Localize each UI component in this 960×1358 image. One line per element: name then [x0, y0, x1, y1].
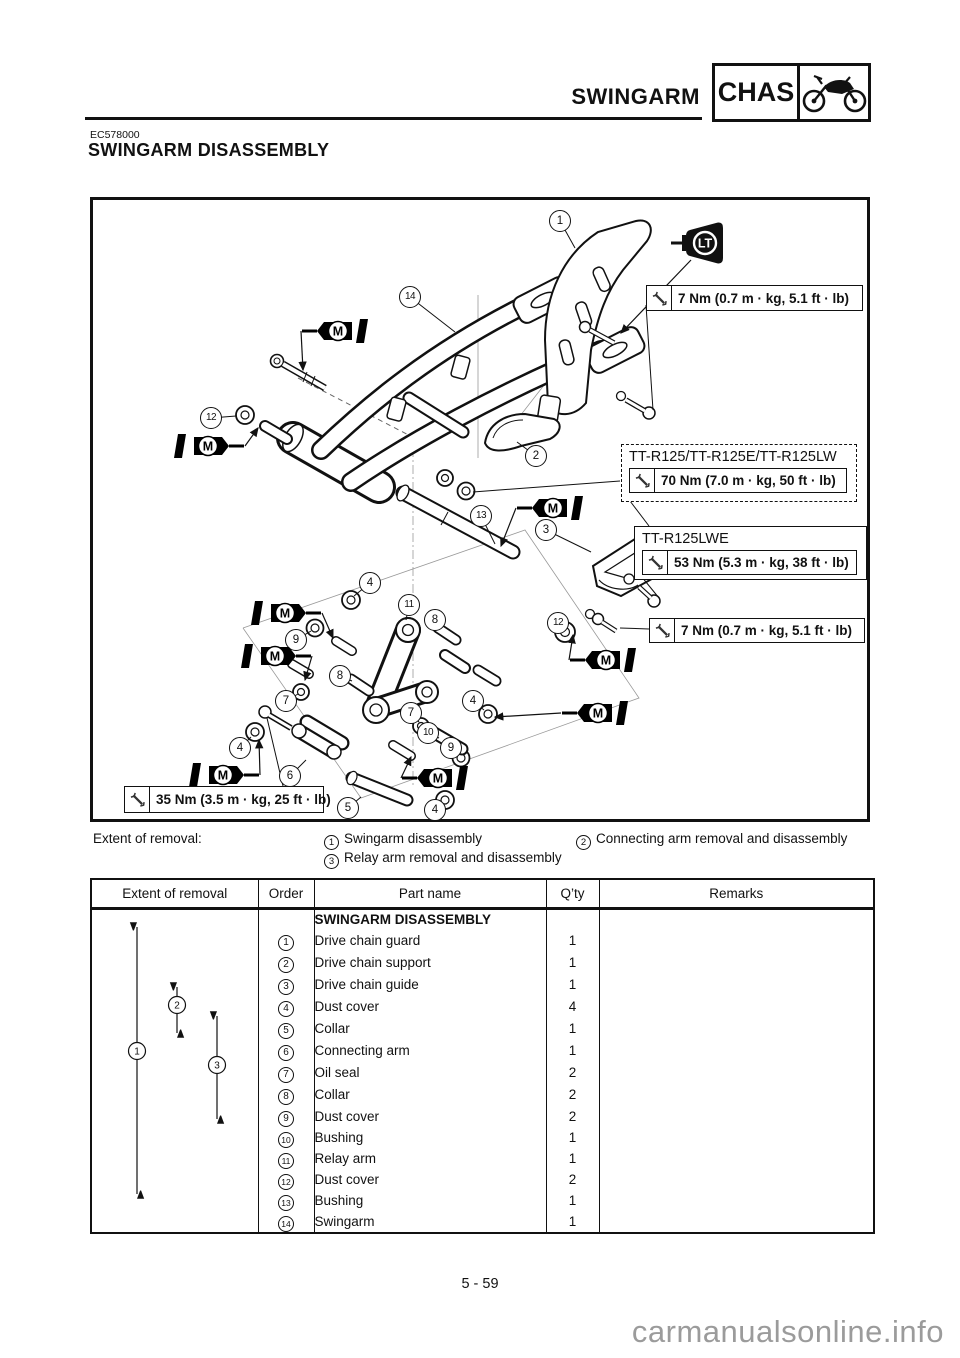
callout-8: 8 — [329, 665, 351, 687]
torque-spec-70nm: 70 Nm (7.0 m · kg, 50 ft · lb) — [629, 468, 847, 493]
remarks-cell — [599, 1127, 874, 1148]
torque-wrench-icon — [630, 469, 655, 492]
svg-text:M: M — [333, 325, 343, 339]
remarks-cell — [599, 1061, 874, 1083]
torque-value: 7 Nm (0.7 m · kg, 5.1 ft · lb) — [672, 286, 862, 310]
col-header-order: Order — [258, 879, 314, 909]
callout-1: 1 — [549, 210, 571, 232]
section-title: SWINGARM — [380, 84, 700, 110]
svg-text:M: M — [203, 440, 213, 454]
remarks-cell — [599, 995, 874, 1017]
model-variant-box: TT-R125LWE 53 Nm (5.3 m · kg, 38 ft · lb… — [634, 526, 867, 580]
remarks-cell — [599, 951, 874, 973]
torque-spec-7nm-mid: 7 Nm (0.7 m · kg, 5.1 ft · lb) — [649, 618, 865, 643]
torque-value: 53 Nm (5.3 m · kg, 38 ft · lb) — [668, 551, 856, 574]
qty-cell: 4 — [546, 995, 599, 1017]
callout-7: 7 — [275, 690, 297, 712]
qty-cell: 2 — [546, 1169, 599, 1190]
svg-text:M: M — [218, 769, 228, 783]
torque-spec-35nm: 35 Nm (3.5 m · kg, 25 ft · lb) — [124, 786, 324, 813]
part-name-cell: Drive chain guard — [314, 929, 546, 951]
order-cell: 4 — [258, 995, 314, 1017]
circled-number: 3 — [278, 979, 294, 995]
callout-4: 4 — [462, 690, 484, 712]
part-name-cell: SWINGARM DISASSEMBLY — [314, 909, 546, 930]
circled-number: 10 — [278, 1132, 294, 1148]
callout-4: 4 — [229, 737, 251, 759]
torque-spec-53nm: 53 Nm (5.3 m · kg, 38 ft · lb) — [642, 550, 857, 575]
remarks-cell — [599, 1039, 874, 1061]
qty-cell: 2 — [546, 1061, 599, 1083]
callout-4: 4 — [424, 799, 446, 821]
part-name-cell: Dust cover — [314, 1105, 546, 1127]
torque-value: 7 Nm (0.7 m · kg, 5.1 ft · lb) — [675, 619, 864, 642]
circled-number: 11 — [278, 1153, 294, 1169]
circled-number: 5 — [278, 1023, 294, 1039]
order-cell: 3 — [258, 973, 314, 995]
callout-12: 12 — [547, 612, 569, 634]
order-cell: 6 — [258, 1039, 314, 1061]
circled-number: 2 — [278, 957, 294, 973]
callout-13: 13 — [470, 505, 492, 527]
grease-applicator-icon: M — [244, 598, 322, 633]
torque-wrench-icon — [125, 787, 150, 812]
grease-applicator-icon: M — [401, 763, 479, 798]
page-number: 5 - 59 — [0, 1276, 960, 1292]
grease-applicator-icon: M — [234, 641, 312, 676]
remarks-cell — [599, 1211, 874, 1233]
part-name-cell: Dust cover — [314, 1169, 546, 1190]
qty-cell: 1 — [546, 1190, 599, 1211]
order-cell: 11 — [258, 1148, 314, 1169]
col-header-remarks: Remarks — [599, 879, 874, 909]
extent-item-text: Swingarm disassembly — [344, 831, 482, 846]
part-name-cell: Drive chain guide — [314, 973, 546, 995]
qty-cell — [546, 909, 599, 930]
extent-item-3: 3Relay arm removal and disassembly — [324, 850, 562, 869]
svg-text:3: 3 — [214, 1061, 220, 1072]
svg-text:M: M — [548, 502, 558, 516]
grease-applicator-icon: M — [167, 431, 245, 466]
table-header-row: Extent of removal Order Part name Q’ty R… — [91, 879, 874, 909]
order-cell: 9 — [258, 1105, 314, 1127]
model-variant-label: TT-R125/TT-R125E/TT-R125LW — [629, 447, 856, 467]
circled-number: 13 — [278, 1195, 294, 1211]
order-cell: 14 — [258, 1211, 314, 1233]
remarks-cell — [599, 1169, 874, 1190]
loctite-icon: LT — [671, 220, 729, 271]
grease-applicator-icon: M — [561, 698, 639, 733]
torque-spec-7nm-top: 7 Nm (0.7 m · kg, 5.1 ft · lb) — [646, 285, 863, 311]
part-name-cell: Relay arm — [314, 1148, 546, 1169]
qty-cell: 1 — [546, 1211, 599, 1233]
torque-value: 35 Nm (3.5 m · kg, 25 ft · lb) — [150, 787, 337, 812]
svg-text:M: M — [433, 772, 443, 786]
circled-number: 4 — [278, 1001, 294, 1017]
callout-12: 12 — [200, 407, 222, 429]
part-name-cell: Collar — [314, 1083, 546, 1105]
extent-item-2: 2Connecting arm removal and disassembly — [576, 831, 847, 850]
extent-arrows-diagram: 123 — [93, 909, 260, 1199]
callout-10: 10 — [417, 722, 439, 744]
callout-14: 14 — [399, 286, 421, 308]
part-name-cell: Dust cover — [314, 995, 546, 1017]
order-cell: 8 — [258, 1083, 314, 1105]
remarks-cell — [599, 909, 874, 930]
qty-cell: 1 — [546, 973, 599, 995]
model-variant-label: TT-R125LWE — [642, 529, 866, 549]
circled-number: 8 — [278, 1089, 294, 1105]
part-name-cell: Swingarm — [314, 1211, 546, 1233]
part-name-cell: Bushing — [314, 1127, 546, 1148]
torque-wrench-icon — [647, 286, 672, 310]
extent-item-1: 1Swingarm disassembly — [324, 831, 482, 850]
callout-4: 4 — [359, 572, 381, 594]
extent-item-text: Connecting arm removal and disassembly — [596, 831, 847, 846]
torque-value: 70 Nm (7.0 m · kg, 50 ft · lb) — [655, 469, 846, 492]
svg-text:M: M — [601, 654, 611, 668]
circled-number: 1 — [324, 835, 339, 850]
part-name-cell: Oil seal — [314, 1061, 546, 1083]
callout-11: 11 — [398, 594, 420, 616]
manual-page: SWINGARM CHAS EC578000 SWINGARM DISASSEM… — [0, 0, 960, 1358]
qty-cell: 2 — [546, 1083, 599, 1105]
qty-cell: 1 — [546, 951, 599, 973]
order-cell: 5 — [258, 1017, 314, 1039]
grease-applicator-icon: M — [301, 316, 379, 351]
qty-cell: 1 — [546, 1039, 599, 1061]
order-cell: 10 — [258, 1127, 314, 1148]
part-name-cell: Collar — [314, 1017, 546, 1039]
parts-table-wrap: Extent of removal Order Part name Q’ty R… — [90, 878, 873, 1234]
circled-number: 9 — [278, 1111, 294, 1127]
order-cell: 13 — [258, 1190, 314, 1211]
part-name-cell: Bushing — [314, 1190, 546, 1211]
order-cell: 2 — [258, 951, 314, 973]
motorcycle-icon — [800, 66, 868, 119]
svg-text:M: M — [270, 650, 280, 664]
col-header-extent: Extent of removal — [91, 879, 258, 909]
callout-9: 9 — [440, 737, 462, 759]
part-name-cell: Drive chain support — [314, 951, 546, 973]
remarks-cell — [599, 929, 874, 951]
col-header-qty: Q’ty — [546, 879, 599, 909]
remarks-cell — [599, 1190, 874, 1211]
col-header-part-name: Part name — [314, 879, 546, 909]
torque-wrench-icon — [650, 619, 675, 642]
qty-cell: 1 — [546, 1148, 599, 1169]
circled-number: 7 — [278, 1067, 294, 1083]
callout-8: 8 — [424, 609, 446, 631]
remarks-cell — [599, 1148, 874, 1169]
watermark: carmanualsonline.info — [632, 1314, 944, 1350]
grease-applicator-icon: M — [569, 645, 647, 680]
svg-text:1: 1 — [134, 1047, 140, 1058]
circled-number: 12 — [278, 1174, 294, 1190]
svg-text:2: 2 — [174, 1001, 180, 1012]
chapter-code: CHAS — [715, 66, 800, 119]
chapter-tab: CHAS — [712, 63, 871, 122]
model-variant-box: TT-R125/TT-R125E/TT-R125LW 70 Nm (7.0 m … — [621, 444, 857, 502]
extent-item-text: Relay arm removal and disassembly — [344, 850, 562, 865]
torque-wrench-icon — [643, 551, 668, 574]
qty-cell: 1 — [546, 1017, 599, 1039]
exploded-diagram: 114212133124118987741094654 MMMMMMMMM LT… — [90, 197, 870, 822]
svg-text:M: M — [593, 707, 603, 721]
circled-number: 2 — [576, 835, 591, 850]
remarks-cell — [599, 1105, 874, 1127]
remarks-cell — [599, 973, 874, 995]
part-name-cell: Connecting arm — [314, 1039, 546, 1061]
callout-6: 6 — [279, 765, 301, 787]
extent-of-removal-label: Extent of removal: — [93, 831, 202, 846]
callout-7: 7 — [400, 702, 422, 724]
qty-cell: 1 — [546, 929, 599, 951]
circled-number: 14 — [278, 1216, 294, 1232]
circled-number: 1 — [278, 935, 294, 951]
order-cell — [258, 909, 314, 930]
circled-number: 3 — [324, 854, 339, 869]
order-cell: 12 — [258, 1169, 314, 1190]
header-rule — [85, 117, 702, 120]
circled-number: 6 — [278, 1045, 294, 1061]
remarks-cell — [599, 1083, 874, 1105]
callout-2: 2 — [525, 445, 547, 467]
qty-cell: 1 — [546, 1127, 599, 1148]
svg-text:M: M — [280, 607, 290, 621]
grease-applicator-icon: M — [516, 493, 594, 528]
remarks-cell — [599, 1017, 874, 1039]
table-row: 14Swingarm1 — [91, 1211, 874, 1233]
order-cell: 7 — [258, 1061, 314, 1083]
extent-cell — [91, 1211, 258, 1233]
page-title: SWINGARM DISASSEMBLY — [88, 140, 329, 161]
loctite-label: LT — [698, 237, 713, 251]
callout-5: 5 — [337, 797, 359, 819]
order-cell: 1 — [258, 929, 314, 951]
qty-cell: 2 — [546, 1105, 599, 1127]
